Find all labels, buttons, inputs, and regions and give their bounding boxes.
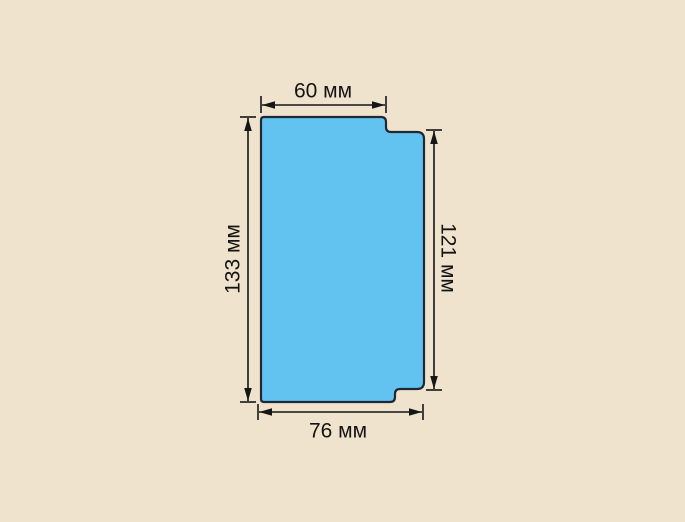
left-dimension-arrow-down [244,388,252,401]
bottom-dimension-arrow-left [259,408,272,416]
right-dimension-label: 121 мм [438,223,459,293]
left-dimension-arrow-up [244,118,252,131]
top-dimension-label: 60 мм [294,81,352,102]
profile-shape [261,117,424,402]
left-dimension-label: 133 мм [223,224,244,294]
top-dimension-arrow-right [372,101,385,109]
right-dimension-arrow-down [430,376,438,389]
bottom-dimension-arrow-right [409,408,422,416]
right-dimension-arrow-up [430,131,438,144]
top-dimension-arrow-left [262,101,275,109]
bottom-dimension [258,404,423,420]
profile-drawing [0,0,685,522]
drawing-canvas: 60 мм 133 мм 121 мм 76 мм [0,0,685,522]
bottom-dimension-label: 76 мм [309,421,367,442]
